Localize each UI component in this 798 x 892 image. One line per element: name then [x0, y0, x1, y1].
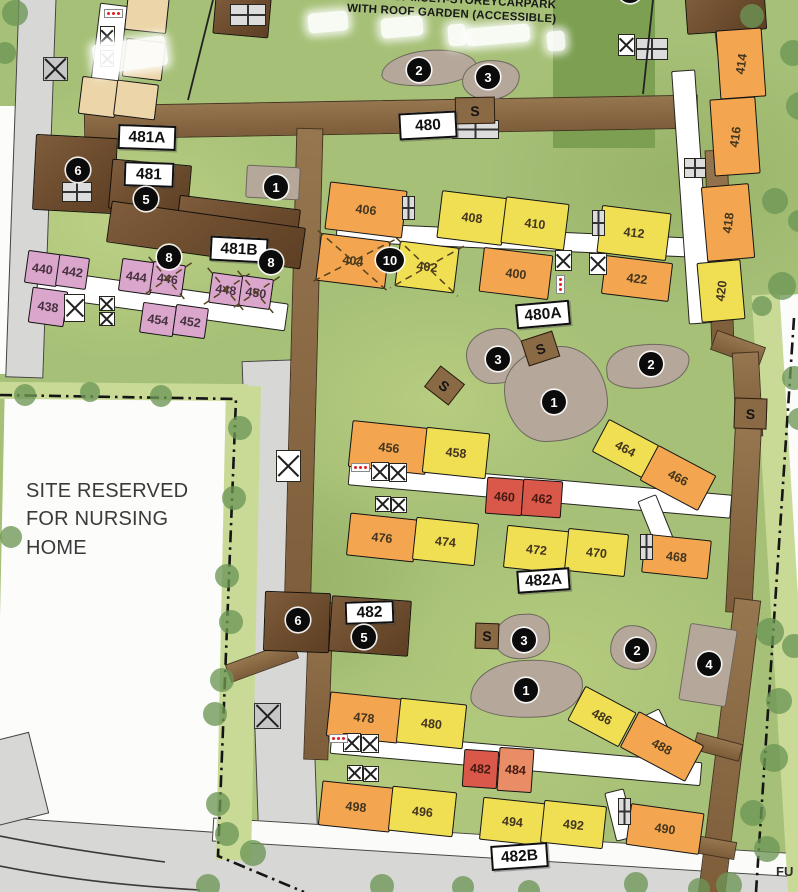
building-408: 408 [436, 190, 507, 246]
lift-shaft-icon [361, 734, 379, 753]
building-482: 482 [462, 749, 500, 789]
entrance-marker [104, 9, 123, 18]
lift-shaft-icon [371, 462, 389, 481]
lift-shaft-icon [589, 253, 607, 275]
building-number: 452 [179, 313, 202, 330]
red-dot [559, 288, 562, 291]
block-label-482: 482 [345, 600, 395, 625]
tree [760, 744, 788, 772]
tree [370, 874, 394, 892]
circled-marker-1: 1 [542, 390, 566, 414]
building-412: 412 [596, 205, 671, 261]
building-number: 402 [416, 259, 438, 275]
circled-marker-2: 2 [639, 352, 663, 376]
utility-grid-box [618, 798, 631, 825]
tree [215, 822, 239, 846]
building-498: 498 [318, 780, 394, 832]
building-number: 472 [525, 541, 547, 557]
building-number: 444 [125, 268, 148, 285]
lift-shaft-icon [363, 766, 379, 782]
red-dot [342, 737, 345, 740]
lift-shaft-icon [99, 296, 115, 311]
block-label-481A: 481A [118, 124, 177, 151]
tree [768, 272, 796, 300]
tree [754, 836, 780, 862]
future-development-label: FU [776, 864, 793, 879]
building-418: 418 [701, 183, 755, 262]
circled-marker-6: 6 [286, 608, 310, 632]
building-420: 420 [696, 259, 745, 323]
building-number: 498 [345, 798, 367, 814]
building-484: 484 [497, 747, 535, 793]
tree [0, 526, 22, 548]
tree [740, 800, 766, 826]
tree [740, 4, 764, 28]
substation-marker: S [475, 623, 500, 650]
tree [240, 840, 266, 866]
building-number: 454 [147, 311, 170, 328]
building-number: 450 [245, 284, 268, 301]
building-450: 450 [238, 275, 274, 310]
lift-shaft-icon [389, 463, 407, 482]
building-470: 470 [564, 528, 629, 577]
tree [756, 618, 784, 646]
utility-grid-box [636, 38, 668, 60]
circled-marker-1: 1 [514, 678, 538, 702]
building-400: 400 [479, 247, 554, 300]
circled-marker-8: 8 [157, 245, 181, 269]
tree [150, 385, 172, 407]
circled-marker-5: 5 [134, 187, 158, 211]
substation-marker: S [455, 97, 495, 125]
building-number: 400 [505, 265, 527, 281]
lift-shaft-icon [375, 496, 391, 512]
building-458: 458 [422, 427, 490, 479]
entrance-marker [329, 734, 348, 743]
circled-marker-4: 4 [697, 652, 721, 676]
tree [0, 42, 16, 64]
building-494: 494 [479, 797, 546, 846]
building-number: 438 [37, 299, 60, 316]
building-number: 494 [501, 813, 523, 829]
building-number: 414 [733, 52, 750, 75]
building-number: 408 [461, 210, 483, 226]
substation-marker: S [424, 365, 465, 405]
tree [215, 564, 239, 588]
building-number: 480 [420, 715, 442, 731]
tree [203, 702, 227, 726]
circled-marker-10: 10 [376, 248, 404, 272]
building-number: 484 [505, 762, 527, 777]
building-number: 446 [156, 271, 179, 288]
circled-marker-3: 3 [476, 65, 500, 89]
red-dot [112, 12, 115, 15]
substation-marker: S [733, 397, 767, 429]
building-number: 496 [411, 803, 433, 819]
circled-marker-3: 3 [486, 347, 510, 371]
site-reserved-line3: HOME [26, 537, 87, 559]
red-dot [559, 283, 562, 286]
tree [80, 382, 100, 402]
red-dot [359, 466, 362, 469]
building-number: 488 [649, 735, 674, 757]
building-422: 422 [601, 255, 673, 302]
building-number: 460 [494, 489, 516, 504]
carpark-skylight [465, 23, 530, 47]
building-414: 414 [716, 27, 767, 99]
utility-grid-box [640, 534, 653, 560]
tree [716, 872, 742, 892]
site-reserved-line1: SITE RESERVED [26, 480, 188, 502]
tree [788, 210, 798, 232]
utility-grid-box [62, 182, 92, 202]
building-number: 486 [589, 705, 614, 727]
building-number: 466 [665, 467, 690, 489]
building-number: 476 [371, 529, 393, 545]
utility-grid-box [230, 4, 266, 26]
building-number: 478 [353, 709, 375, 725]
building-number: 404 [342, 253, 364, 269]
building-number: 458 [445, 445, 467, 461]
circled-marker-2: 2 [407, 58, 431, 82]
circled-marker-1: 1 [264, 175, 288, 199]
building-number: 456 [378, 439, 400, 455]
block-label-481: 481 [124, 161, 175, 188]
building-452: 452 [172, 304, 209, 339]
building-number: 492 [562, 816, 584, 832]
building-496: 496 [388, 786, 457, 838]
red-dot [107, 12, 110, 15]
building-number: 416 [727, 125, 744, 148]
block-label-480A: 480A [515, 300, 571, 330]
lift-shaft-icon [555, 250, 572, 271]
red-dot [117, 12, 120, 15]
lift-shaft-icon [276, 450, 301, 482]
building-number: 418 [720, 211, 736, 233]
tree [752, 296, 772, 316]
building-number: 406 [355, 202, 377, 218]
block-label-482A: 482A [516, 567, 570, 594]
building-number: 482 [470, 761, 492, 776]
building-number: 448 [215, 281, 238, 298]
tree [780, 40, 798, 66]
circled-marker-8: 8 [259, 250, 283, 274]
utility-grid-box [684, 158, 706, 178]
block-label-480: 480 [398, 111, 457, 141]
carpark-skylight [546, 30, 566, 51]
tree [222, 486, 246, 510]
circled-marker-2: 2 [625, 638, 649, 662]
covered-linkway [725, 427, 762, 613]
tree [624, 872, 648, 892]
building-402: 402 [394, 241, 459, 294]
tree [2, 0, 28, 26]
building-462: 462 [521, 479, 563, 519]
building-442: 442 [55, 254, 90, 290]
building-number: 410 [524, 215, 546, 231]
building-number: 422 [626, 270, 648, 286]
carpark-skylight [447, 23, 467, 46]
site-plan-map: 1-STOREY MULTI-STOREYCARPARK WITH ROOF G… [0, 0, 798, 892]
lift-shaft-icon [64, 294, 85, 322]
tree [766, 688, 792, 714]
nursing-home-site-label: SITE RESERVED FOR NURSING HOME [26, 477, 188, 562]
lift-shaft-icon [391, 497, 407, 513]
building-number: 464 [613, 437, 638, 459]
tree [219, 610, 243, 634]
building-492: 492 [540, 800, 607, 849]
lift-shaft-icon [43, 57, 68, 81]
entrance-marker [351, 463, 370, 472]
site-reserved-line2: FOR NURSING [26, 508, 168, 530]
building-410: 410 [500, 196, 569, 250]
building-number: 470 [585, 544, 607, 560]
circled-marker-5: 5 [352, 625, 376, 649]
building-406: 406 [324, 181, 407, 238]
lift-shaft-icon [347, 765, 363, 781]
tree [452, 876, 474, 892]
tree [786, 92, 798, 120]
lift-shaft-icon [618, 34, 635, 56]
circled-marker-3: 3 [512, 628, 536, 652]
block-label-482B: 482B [490, 842, 549, 871]
red-dot [337, 737, 340, 740]
building-number: 490 [654, 821, 677, 838]
tree [14, 384, 36, 406]
building-number: 474 [434, 533, 456, 549]
building-476: 476 [346, 513, 418, 563]
utility-grid-box [592, 210, 605, 236]
lift-shaft-icon [99, 312, 115, 326]
building-474: 474 [412, 517, 479, 566]
building-number: 468 [665, 548, 687, 564]
building-480: 480 [396, 698, 467, 750]
building-460: 460 [485, 477, 524, 516]
tree [228, 416, 252, 440]
building [113, 80, 159, 121]
covered-linkway [284, 128, 324, 621]
red-dot [354, 466, 357, 469]
utility-grid-box [402, 196, 415, 220]
building-416: 416 [709, 96, 760, 176]
building-number: 440 [31, 260, 54, 277]
boundary-planting-strip [0, 382, 248, 401]
building-number: 412 [623, 225, 645, 241]
entrance-marker [556, 275, 565, 294]
tree [196, 874, 220, 892]
building-number: 420 [713, 280, 729, 302]
building-number: 442 [61, 264, 84, 281]
building-438: 438 [28, 287, 69, 328]
red-dot [364, 466, 367, 469]
tree [206, 792, 230, 816]
building-number: 462 [531, 491, 553, 506]
red-dot [559, 278, 562, 281]
tree [762, 188, 788, 214]
red-dot [332, 737, 335, 740]
tree [210, 668, 234, 692]
building [124, 0, 170, 34]
circled-marker-6: 6 [66, 158, 90, 182]
lift-shaft-icon [254, 703, 281, 729]
